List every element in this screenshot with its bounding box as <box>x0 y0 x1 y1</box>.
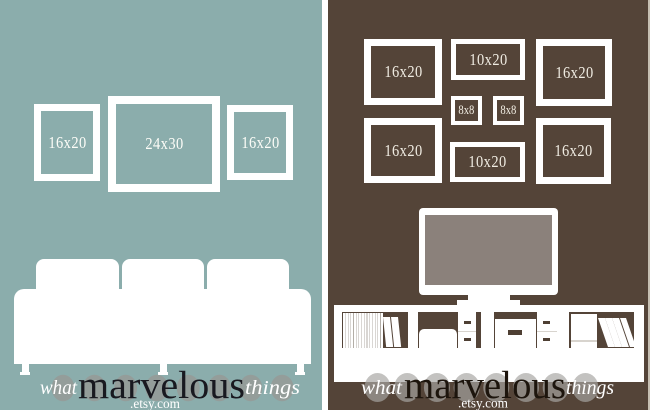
svg-text:things: things <box>566 378 614 399</box>
svg-text:what: what <box>40 378 78 399</box>
svg-text:.etsy.com: .etsy.com <box>458 396 508 411</box>
svg-text:things: things <box>245 378 300 399</box>
svg-text:.etsy.com: .etsy.com <box>130 396 180 410</box>
svg-text:what: what <box>361 378 403 399</box>
